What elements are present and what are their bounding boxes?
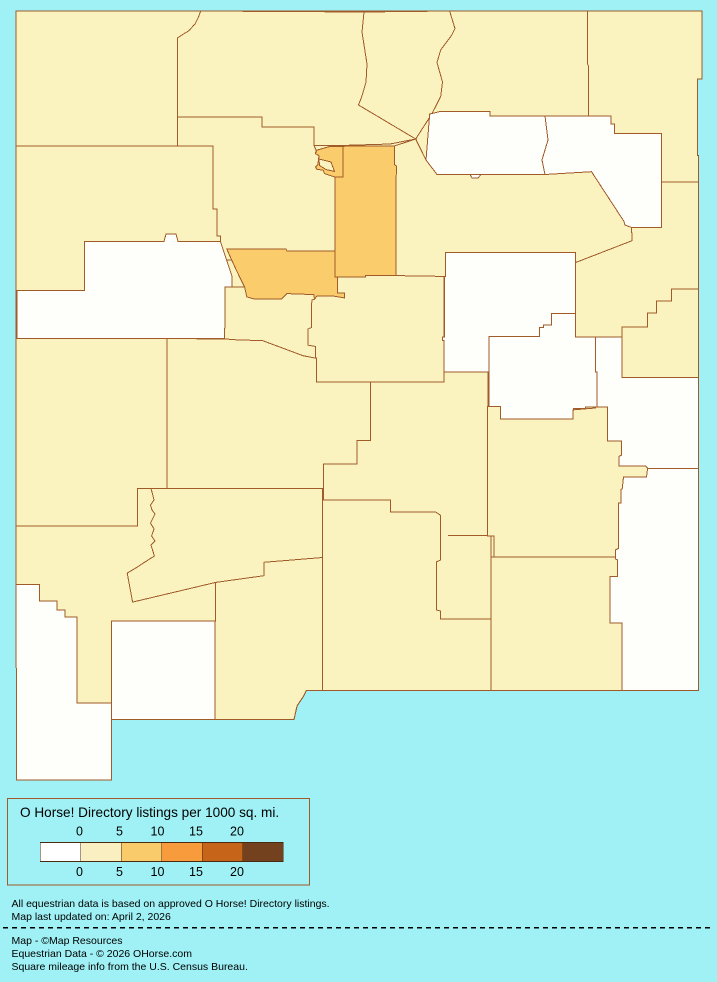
svg-text:All equestrian data is based o: All equestrian data is based on approved…: [12, 898, 330, 910]
svg-text:0: 0: [76, 825, 83, 839]
svg-text:20: 20: [230, 825, 244, 839]
svg-text:15: 15: [189, 825, 203, 839]
svg-text:10: 10: [151, 865, 165, 879]
svg-text:20: 20: [230, 865, 244, 879]
svg-text:15: 15: [189, 865, 203, 879]
svg-text:O Horse! Directory listings pe: O Horse! Directory listings per 1000 sq.…: [20, 805, 279, 820]
svg-text:0: 0: [76, 865, 83, 879]
svg-text:Map last updated on: April 2,: Map last updated on: April 2, 2026: [12, 911, 172, 923]
svg-text:5: 5: [116, 825, 123, 839]
svg-text:Square mileage info from the U: Square mileage info from the U.S. Census…: [12, 961, 248, 973]
svg-text:10: 10: [151, 825, 165, 839]
svg-text:5: 5: [116, 865, 123, 879]
svg-text:Equestrian Data - © 2026 OHors: Equestrian Data - © 2026 OHorse.com: [12, 948, 193, 960]
svg-text:Map - ©Map Resources: Map - ©Map Resources: [12, 935, 123, 947]
